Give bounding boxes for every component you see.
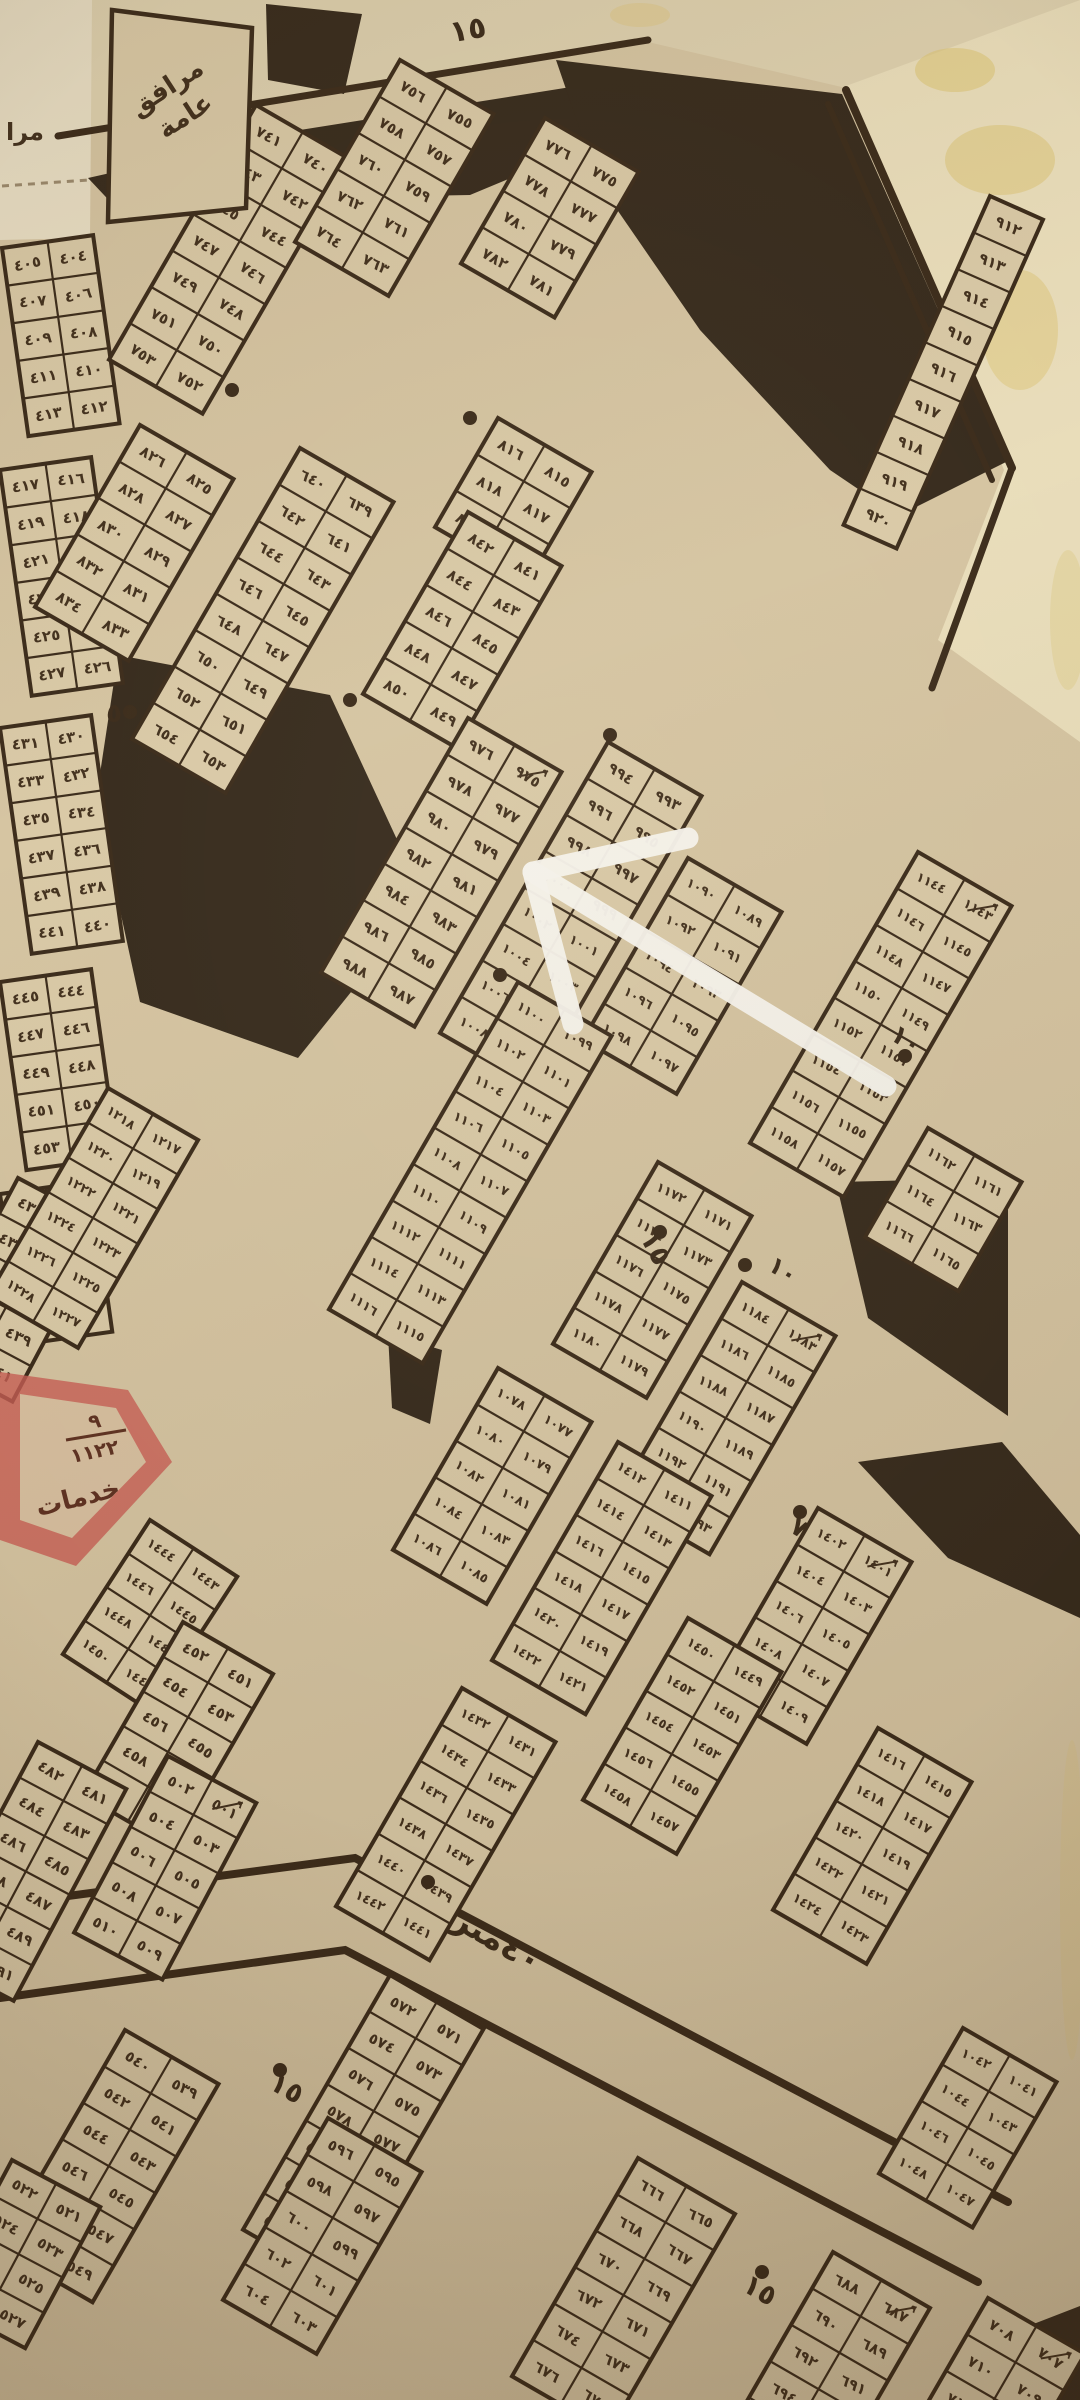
edge-partial-text: مرا (6, 118, 44, 146)
street-junction-dot (603, 728, 617, 742)
plot-number: ٤١٠ (74, 360, 103, 381)
street-junction-dot (738, 1258, 752, 1272)
plot-number: ٤١٧ (11, 475, 41, 497)
street-junction-dot (123, 705, 137, 719)
plot-number: ٤٣١ (11, 734, 40, 754)
street-width-label: ٥ (106, 699, 122, 729)
plot-number: ٤٥٣ (32, 1137, 62, 1159)
street-junction-dot (463, 411, 477, 425)
plot-number: ٤٤١ (37, 922, 66, 942)
plot-number: ٤٢٥ (32, 626, 61, 647)
street-width-label: ١٥ (447, 10, 489, 51)
plot-number: ٤٤٦ (61, 1018, 91, 1040)
plot-number: ٤٠٩ (23, 328, 52, 349)
plot-number: ٤٤٩ (22, 1063, 51, 1083)
plot-number: ٤٠٧ (18, 291, 47, 311)
street-junction-dot (343, 693, 357, 707)
plot-number: ٤٢٦ (83, 657, 112, 678)
paper-stain (915, 48, 995, 92)
plot-number: ٤٠٨ (69, 323, 98, 343)
paper-stain (945, 125, 1055, 195)
plot-number: ٤٣٣ (16, 771, 45, 792)
street-junction-dot (493, 968, 507, 982)
map-photo: ٤٠٥٤٠٤٤٠٧٤٠٦٤٠٩٤٠٨٤١١٤١٠٤١٣٤١٢٤١٧٤١٦٤١٩٤… (0, 0, 1080, 2400)
plot-number: ٤١٦ (57, 469, 86, 489)
plot-number: ٤١٢ (79, 397, 109, 419)
plot-number: ٤٣٦ (72, 839, 101, 860)
plot-number: ٤٤٤ (56, 981, 85, 1002)
paper-stain (610, 3, 670, 27)
cadastral-map: ٤٠٥٤٠٤٤٠٧٤٠٦٤٠٩٤٠٨٤١١٤١٠٤١٣٤١٢٤١٧٤١٦٤١٩٤… (0, 0, 1080, 2400)
street-junction-dot (225, 383, 239, 397)
plot-number: ٤٣٤ (67, 802, 96, 822)
plot-number: ٤٣٥ (21, 808, 51, 830)
plot-number: ٤٥١ (27, 1100, 56, 1121)
public-utilities-parcel: مرافقعامة (108, 10, 252, 222)
street-junction-dot (421, 1875, 435, 1889)
